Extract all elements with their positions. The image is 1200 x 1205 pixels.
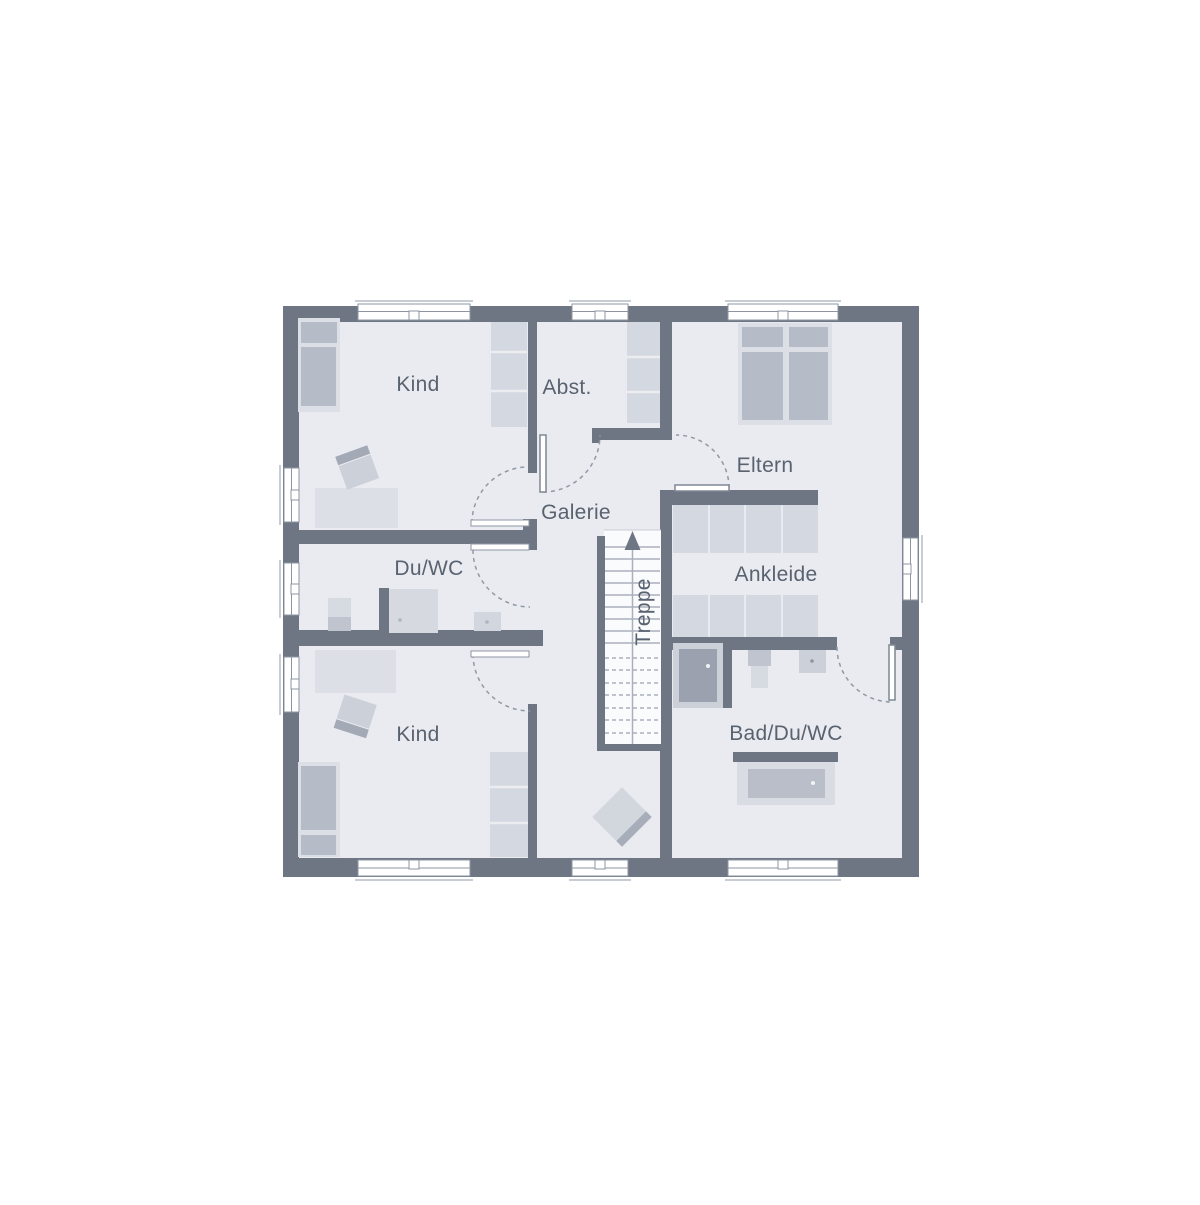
room-label-kind-bottom: Kind	[396, 723, 439, 746]
room-label-eltern: Eltern	[737, 454, 794, 477]
closet-row-bottom	[673, 595, 818, 637]
window-eltern	[725, 301, 841, 320]
wall-ankleide-top	[672, 490, 818, 505]
bed	[298, 762, 340, 857]
furniture-eltern	[738, 323, 832, 425]
wall-abst-eltern	[660, 322, 672, 433]
stair-bottom-border	[597, 744, 666, 751]
shower-tray	[389, 589, 438, 633]
wall-center-right	[660, 490, 672, 858]
wardrobe	[490, 752, 528, 857]
door-slide-kind-bottom	[471, 651, 529, 657]
window-left-kind-bottom	[280, 654, 299, 715]
window-left-kind-top	[280, 465, 299, 525]
window-kind-top	[355, 301, 473, 320]
stair-left-border	[597, 536, 605, 751]
wall-shower-partition-bad	[723, 638, 732, 708]
toilet	[328, 598, 351, 631]
wall-kind-galerie	[528, 704, 537, 858]
window-right-ankleide	[903, 535, 922, 603]
wardrobe	[491, 322, 527, 427]
room-label-galerie: Galerie	[541, 501, 611, 524]
washbasin	[799, 650, 826, 673]
bed	[298, 318, 340, 412]
wall-kind-abst	[528, 322, 537, 473]
room-label-abst: Abst.	[542, 376, 591, 399]
desk	[315, 488, 398, 528]
closet-row-top	[673, 505, 818, 553]
double-bed	[738, 323, 832, 425]
wall-shower-partition-duwc	[379, 588, 389, 645]
shower	[673, 643, 723, 708]
door-leaf-eltern	[675, 485, 729, 491]
furniture-abst	[627, 322, 660, 423]
washbasin	[474, 612, 501, 631]
room-label-treppe: Treppe	[632, 578, 655, 646]
toilet	[748, 650, 771, 688]
room-label-ankleide: Ankleide	[735, 563, 818, 586]
floor-plan-page: Kind Abst. Eltern Galerie Du/WC Ankleide…	[0, 0, 1200, 1200]
bathtub	[737, 762, 835, 805]
wall-abst-bottom	[592, 428, 672, 440]
wall-abst-cap	[592, 428, 600, 443]
door-slide-kind-top	[471, 520, 529, 526]
floor-plan-drawing: Kind Abst. Eltern Galerie Du/WC Ankleide…	[0, 0, 1200, 1200]
storage-cabinet	[627, 322, 660, 423]
door-leaf-bad	[889, 645, 895, 700]
door-slide-duwc	[471, 544, 529, 550]
wall-bathtub-shelf	[733, 752, 838, 762]
room-label-duwc: Du/WC	[394, 557, 463, 580]
wall-kind-duwc	[299, 530, 537, 544]
room-label-bad: Bad/Du/WC	[729, 722, 843, 745]
window-left-duwc	[280, 560, 299, 618]
desk	[315, 650, 396, 693]
room-label-kind-top: Kind	[396, 373, 439, 396]
door-leaf-abst	[540, 435, 546, 492]
window-abst	[569, 301, 631, 320]
